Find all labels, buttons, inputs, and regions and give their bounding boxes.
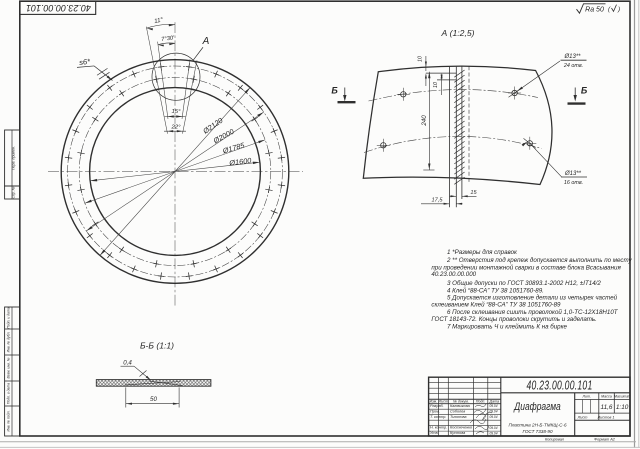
svg-text:40.23.00.00.101: 40.23.00.00.101	[26, 3, 91, 13]
svg-text:09.04: 09.04	[490, 426, 498, 430]
svg-text:7 Маркировать Ч и клеймить К н: 7 Маркировать Ч и клеймить К на бирке	[447, 323, 568, 330]
svg-text:ГОСТ 7338-90: ГОСТ 7338-90	[522, 429, 552, 434]
svg-text:): )	[617, 6, 620, 13]
svg-text:Пластина 2Н-Б-ТМКЩ-С-6: Пластина 2Н-Б-ТМКЩ-С-6	[509, 423, 567, 428]
svg-text:2 ** Отверстия под крепеж допу: 2 ** Отверстия под крепеж допускается вы…	[446, 257, 633, 264]
svg-text:Ø13**: Ø13**	[564, 171, 582, 177]
svg-text:1:10: 1:10	[616, 404, 629, 411]
svg-text:Взам. инв. №: Взам. инв. №	[7, 357, 11, 378]
svg-text:240: 240	[421, 115, 428, 127]
svg-text:22°: 22°	[170, 124, 181, 130]
svg-text:Подп.: Подп.	[476, 400, 486, 404]
svg-text:09.04: 09.04	[490, 415, 498, 419]
svg-text:Спр. №: Спр. №	[12, 186, 16, 198]
svg-text:Формат А2: Формат А2	[594, 438, 616, 442]
svg-text:0,4: 0,4	[123, 360, 132, 367]
svg-text:09.04: 09.04	[490, 431, 498, 435]
svg-text:Лит.: Лит.	[581, 395, 590, 399]
svg-text:Листов 1: Листов 1	[597, 415, 615, 419]
svg-text:09.04: 09.04	[490, 410, 498, 414]
svg-text:Б: Б	[331, 86, 338, 96]
svg-text:А (1:2,5): А (1:2,5)	[441, 28, 475, 38]
svg-text:10: 10	[433, 82, 439, 88]
svg-text:Перв. примен.: Перв. примен.	[12, 146, 16, 170]
svg-text:15°: 15°	[171, 109, 181, 115]
svg-text:Кустова: Кустова	[450, 431, 465, 435]
svg-text:Костюченко: Костюченко	[450, 426, 472, 430]
svg-text:Б: Б	[581, 86, 588, 96]
svg-text:09.04: 09.04	[490, 404, 498, 408]
svg-text:Масштаб: Масштаб	[614, 395, 630, 399]
svg-text:50: 50	[150, 396, 157, 403]
svg-text:15: 15	[470, 190, 477, 196]
svg-text:Ra 50: Ra 50	[585, 7, 604, 14]
svg-text:11,6: 11,6	[601, 404, 613, 411]
svg-text:Подп. и дата: Подп. и дата	[7, 383, 11, 404]
svg-text:Лист: Лист	[577, 415, 588, 419]
svg-text:Разраб.: Разраб.	[430, 404, 444, 408]
svg-text:17,5: 17,5	[432, 197, 444, 203]
svg-text:Н. контр.: Н. контр.	[430, 426, 447, 430]
svg-text:Соболев: Соболев	[450, 409, 465, 413]
svg-text:1 *Размеры для справок: 1 *Размеры для справок	[447, 249, 518, 256]
svg-text:10: 10	[417, 56, 423, 62]
svg-text:Копировал: Копировал	[545, 438, 565, 442]
svg-text:ГОСТ 18143-72. Концы проволоки: ГОСТ 18143-72. Концы проволоки скрутить …	[431, 316, 597, 323]
svg-text:Б-Б (1:1): Б-Б (1:1)	[140, 341, 174, 351]
svg-text:склеиванием Клей “88-СА” ТУ 3: склеиванием Клей “88-СА” ТУ 38 1051760-8…	[431, 302, 561, 309]
svg-text:Инв. № подл.: Инв. № подл.	[7, 410, 11, 431]
svg-text:Ø13**: Ø13**	[563, 54, 581, 60]
svg-text:24 отв.: 24 отв.	[563, 63, 583, 69]
svg-text:Дата: Дата	[489, 400, 499, 404]
svg-text:Подп. и дата: Подп. и дата	[7, 307, 11, 328]
svg-text:Утв.: Утв.	[430, 431, 439, 435]
svg-text:4 Клей “88-СА” ТУ 38 1051760-8: 4 Клей “88-СА” ТУ 38 1051760-89.	[447, 287, 544, 294]
svg-text:А: А	[202, 36, 210, 47]
svg-text:Пров.: Пров.	[430, 409, 440, 413]
svg-text:6 После склеивания сшить прово: 6 После склеивания сшить проволокой 1,0-…	[447, 309, 619, 316]
svg-text:3 Общие допуски по ГОСТ 30893.: 3 Общие допуски по ГОСТ 30893.1-2002 Н12…	[447, 280, 601, 287]
svg-text:40.23.00.00.101: 40.23.00.00.101	[527, 379, 593, 393]
svg-text:Инв. № дубл.: Инв. № дубл.	[7, 332, 11, 353]
svg-text:5 Допускается изготовление дет: 5 Допускается изготовление детали из чет…	[447, 295, 618, 302]
svg-text:Калмыкова: Калмыкова	[450, 404, 470, 408]
svg-text:Диафрагма: Диафрагма	[513, 401, 560, 413]
svg-text:Тихонова: Тихонова	[450, 415, 466, 419]
svg-text:Т. контр.: Т. контр.	[430, 415, 446, 419]
svg-text:16 отв.: 16 отв.	[564, 180, 583, 186]
svg-text:40.23.00.00.000: 40.23.00.00.000	[431, 271, 476, 278]
svg-text:Масса: Масса	[601, 395, 612, 399]
